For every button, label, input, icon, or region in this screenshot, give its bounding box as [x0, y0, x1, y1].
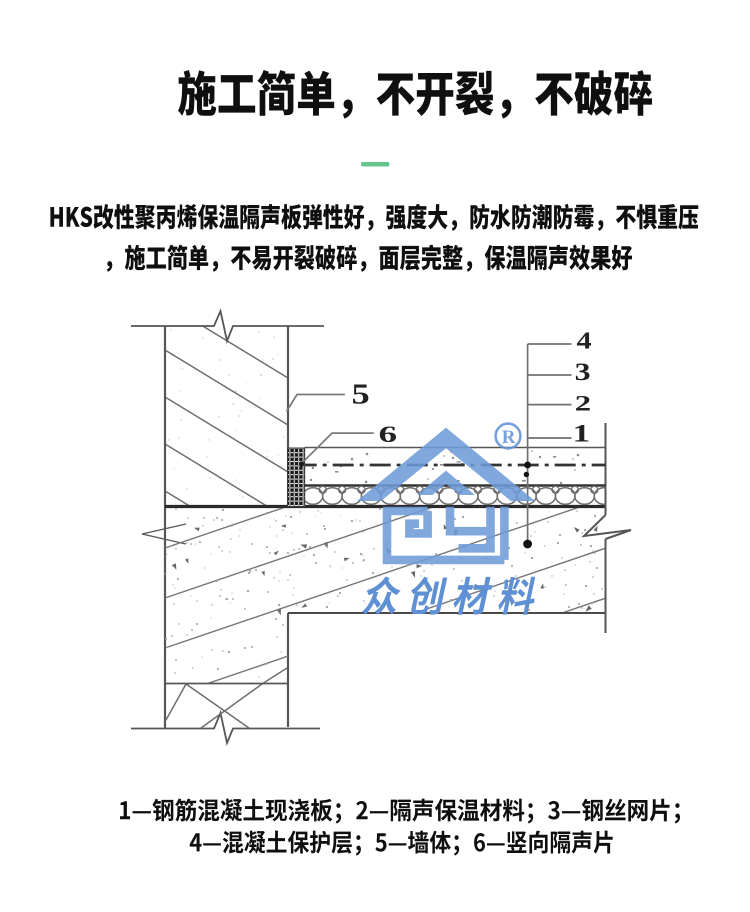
svg-text:2: 2: [575, 391, 592, 416]
svg-text:R: R: [502, 427, 516, 448]
svg-text:1: 1: [573, 419, 591, 447]
svg-text:4: 4: [577, 326, 592, 354]
svg-text:5: 5: [352, 379, 370, 410]
svg-text:6: 6: [379, 421, 398, 447]
svg-text:3: 3: [575, 358, 591, 386]
